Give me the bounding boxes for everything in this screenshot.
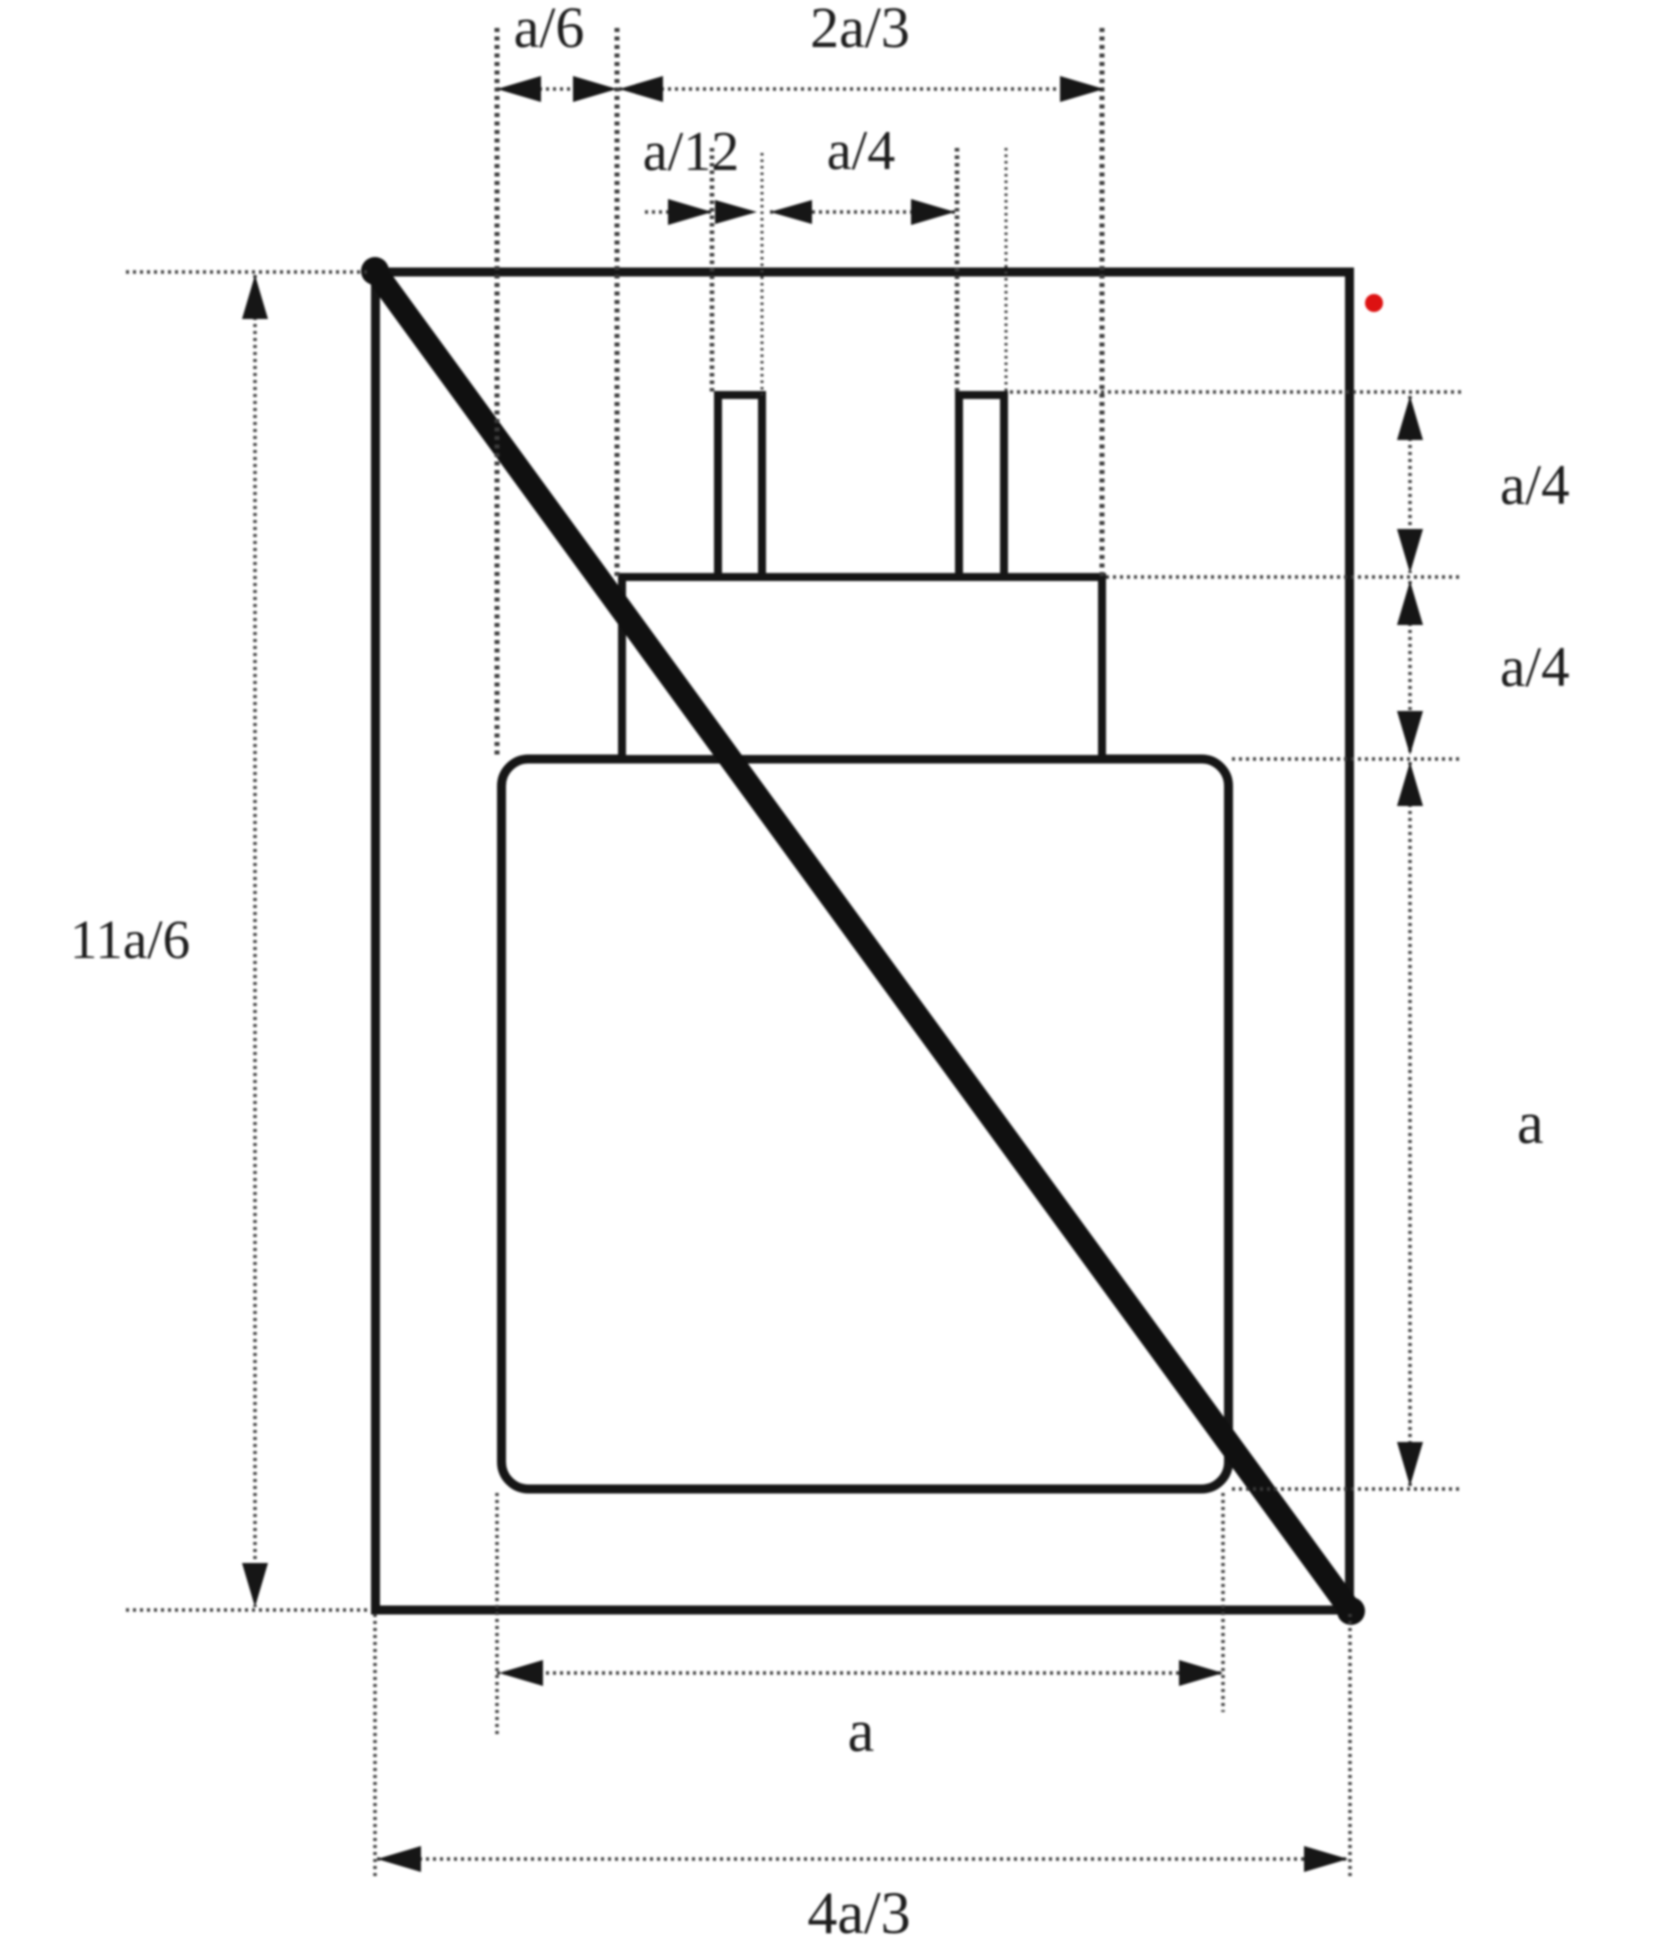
svg-text:a: a bbox=[848, 1698, 875, 1764]
svg-text:a/6: a/6 bbox=[514, 0, 585, 60]
svg-text:a/12: a/12 bbox=[643, 121, 739, 183]
svg-text:a/4: a/4 bbox=[1500, 454, 1570, 517]
svg-text:11a/6: 11a/6 bbox=[70, 909, 190, 970]
svg-text:4a/3: 4a/3 bbox=[807, 1880, 910, 1946]
svg-text:a: a bbox=[1517, 1090, 1544, 1156]
svg-text:2a/3: 2a/3 bbox=[810, 0, 910, 60]
svg-text:a/4: a/4 bbox=[1500, 636, 1570, 699]
svg-text:a/4: a/4 bbox=[827, 120, 895, 182]
